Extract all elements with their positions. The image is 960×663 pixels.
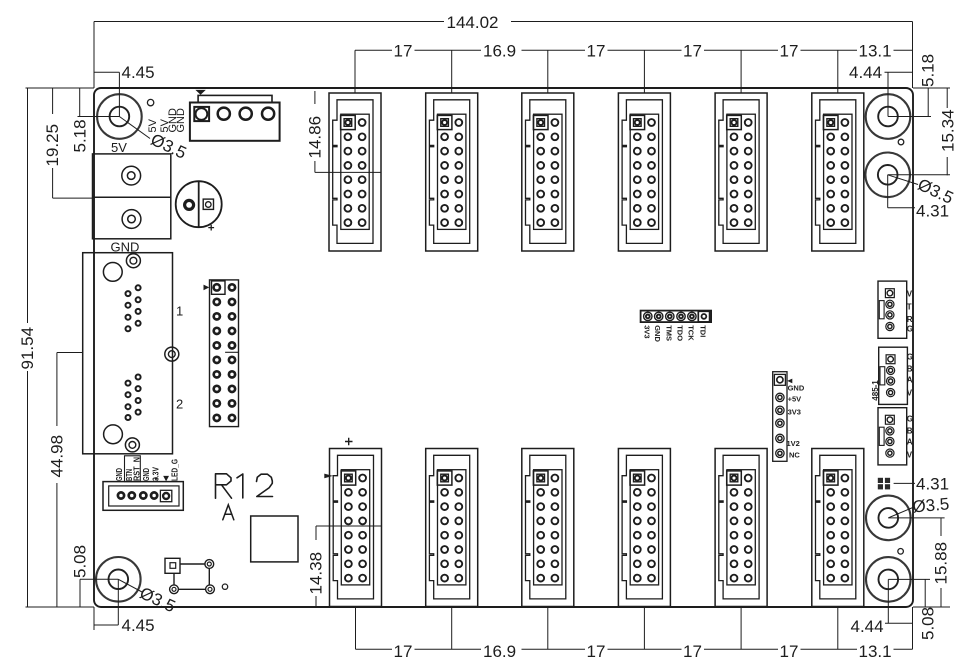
svg-text:LED_G: LED_G [170, 459, 180, 481]
svg-text:Ø3.5: Ø3.5 [912, 494, 950, 516]
svg-text:+5V: +5V [788, 395, 802, 404]
svg-text:GND: GND [175, 108, 187, 133]
svg-text:2: 2 [176, 397, 183, 412]
svg-text:TCK: TCK [686, 325, 695, 341]
svg-text:A: A [907, 438, 913, 447]
svg-text:Ø3.5: Ø3.5 [148, 130, 189, 163]
svg-text:T: T [907, 303, 912, 312]
svg-text:14.86: 14.86 [306, 116, 325, 159]
svg-text:4.31: 4.31 [916, 475, 949, 494]
svg-text:NC: NC [789, 451, 800, 460]
svg-text:V: V [907, 451, 913, 460]
svg-text:G: G [907, 353, 913, 362]
svg-text:16.9: 16.9 [483, 642, 516, 661]
svg-text:TMS: TMS [664, 325, 673, 341]
svg-text:17: 17 [780, 642, 799, 661]
svg-text:V: V [907, 389, 913, 398]
svg-text:485-1: 485-1 [871, 380, 880, 401]
svg-text:5.18: 5.18 [919, 54, 938, 87]
svg-text:4.44: 4.44 [849, 63, 882, 82]
svg-text:A: A [907, 375, 913, 384]
svg-text:GND: GND [114, 468, 124, 481]
svg-text:3V3: 3V3 [642, 325, 651, 338]
svg-text:19.25: 19.25 [43, 124, 62, 167]
svg-text:17: 17 [587, 642, 606, 661]
svg-text:GND: GND [653, 325, 662, 342]
svg-text:14.38: 14.38 [307, 552, 326, 595]
svg-text:17: 17 [780, 42, 799, 61]
svg-text:17: 17 [683, 642, 702, 661]
svg-text:B: B [907, 427, 913, 436]
svg-text:144.02: 144.02 [447, 13, 499, 32]
svg-text:15.34: 15.34 [939, 109, 958, 152]
svg-text:4.45: 4.45 [122, 616, 155, 635]
svg-text:4.44: 4.44 [851, 617, 884, 636]
svg-text:5.08: 5.08 [71, 545, 90, 578]
svg-text:RST_N: RST_N [131, 457, 141, 481]
svg-text:1V2: 1V2 [787, 439, 800, 448]
svg-text:17: 17 [683, 42, 702, 61]
svg-text:5.08: 5.08 [919, 607, 938, 640]
svg-text:V: V [907, 290, 913, 299]
svg-text:17: 17 [394, 642, 413, 661]
svg-text:15.88: 15.88 [932, 542, 951, 585]
svg-text:16.9: 16.9 [483, 42, 516, 61]
svg-text:13.1: 13.1 [859, 42, 892, 61]
svg-text:17: 17 [587, 42, 606, 61]
svg-text:B: B [907, 365, 913, 374]
svg-text:GND: GND [788, 383, 805, 392]
svg-text:G: G [907, 325, 913, 334]
svg-text:TDO: TDO [676, 325, 685, 341]
svg-text:13.1: 13.1 [859, 642, 892, 661]
svg-text:5.18: 5.18 [71, 119, 90, 152]
svg-text:4.45: 4.45 [122, 63, 155, 82]
svg-text:44.98: 44.98 [48, 435, 67, 478]
svg-text:R: R [907, 315, 913, 324]
svg-text:17: 17 [394, 42, 413, 61]
svg-text:5V: 5V [111, 140, 127, 155]
svg-text:4.31: 4.31 [916, 202, 949, 221]
svg-text:1: 1 [176, 304, 183, 319]
svg-text:3V3: 3V3 [788, 408, 801, 417]
svg-text:TDI: TDI [698, 325, 707, 337]
svg-text:G: G [907, 415, 913, 424]
svg-text:91.54: 91.54 [18, 327, 37, 370]
